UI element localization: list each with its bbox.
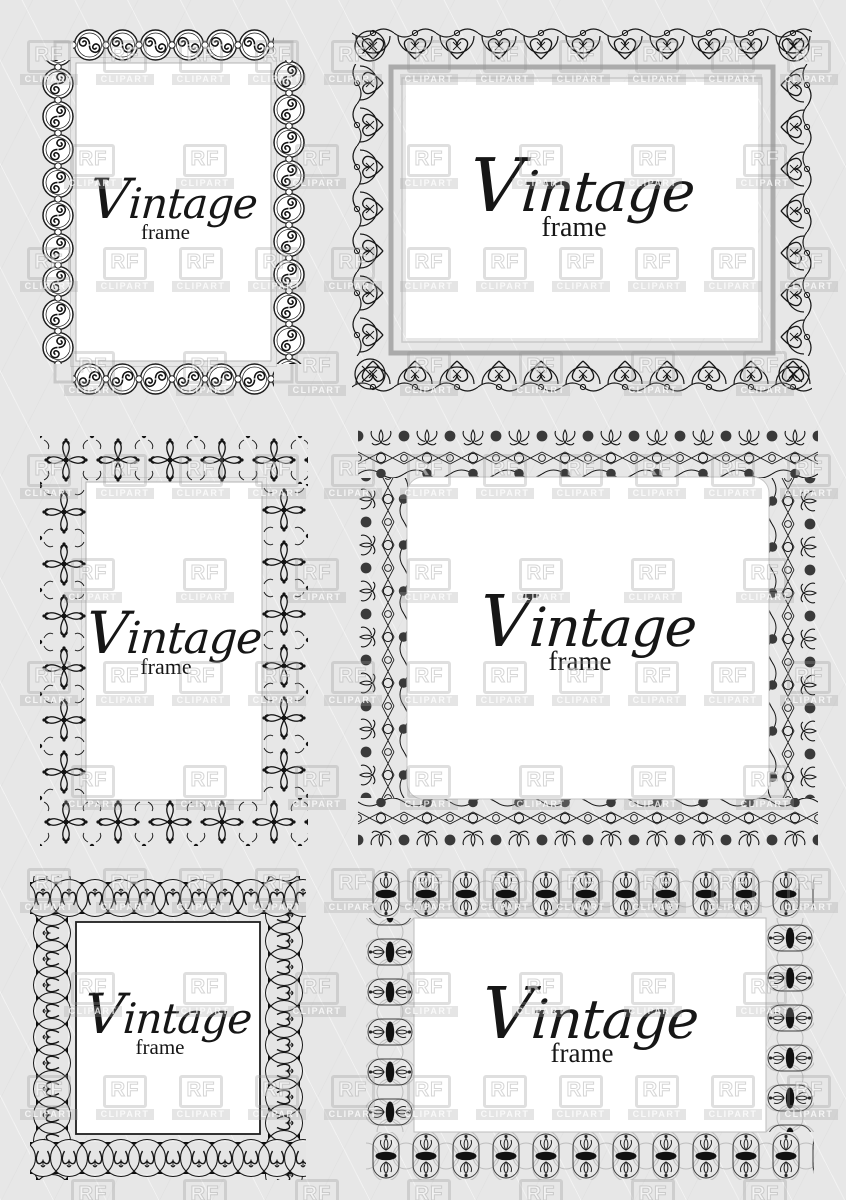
watermark-rf-logo: RF <box>743 1179 787 1200</box>
frame-5-ornament-border <box>30 876 306 1180</box>
watermark-rf-clipart: RFCLIPART <box>512 1179 570 1200</box>
frame-3-ornament-border <box>40 436 308 846</box>
watermark-rf-logo: RF <box>519 1179 563 1200</box>
vintage-frame-top-right: Vintage frame <box>352 28 812 392</box>
watermark-rf-clipart: RFCLIPART <box>288 1179 346 1200</box>
frame-2-ornament-border <box>352 28 812 392</box>
watermark-rf-logo: RF <box>295 1179 339 1200</box>
vintage-frame-top-left: Vintage frame <box>40 27 307 397</box>
frame-6-ornament-border <box>366 870 814 1180</box>
clipart-sheet: Vintage frame <box>0 0 846 1200</box>
frame-1-ornament-border <box>40 27 307 397</box>
vintage-frame-bottom-left: Vintage frame <box>30 876 306 1180</box>
watermark-rf-clipart: RFCLIPART <box>176 1179 234 1200</box>
frame-4-ornament-border <box>358 428 818 848</box>
vintage-frame-bottom-right: Vintage frame <box>366 870 814 1180</box>
watermark-rf-logo: RF <box>183 1179 227 1200</box>
watermark-rf-clipart: RFCLIPART <box>400 1179 458 1200</box>
watermark-rf-logo: RF <box>71 1179 115 1200</box>
watermark-rf-clipart: RFCLIPART <box>64 1179 122 1200</box>
vintage-frame-middle-right: Vintage frame <box>358 428 818 848</box>
watermark-rf-clipart: RFCLIPART <box>736 1179 794 1200</box>
watermark-rf-clipart: RFCLIPART <box>624 1179 682 1200</box>
watermark-rf-logo: RF <box>631 1179 675 1200</box>
watermark-rf-logo: RF <box>407 1179 451 1200</box>
vintage-frame-middle-left: Vintage frame <box>40 436 308 846</box>
